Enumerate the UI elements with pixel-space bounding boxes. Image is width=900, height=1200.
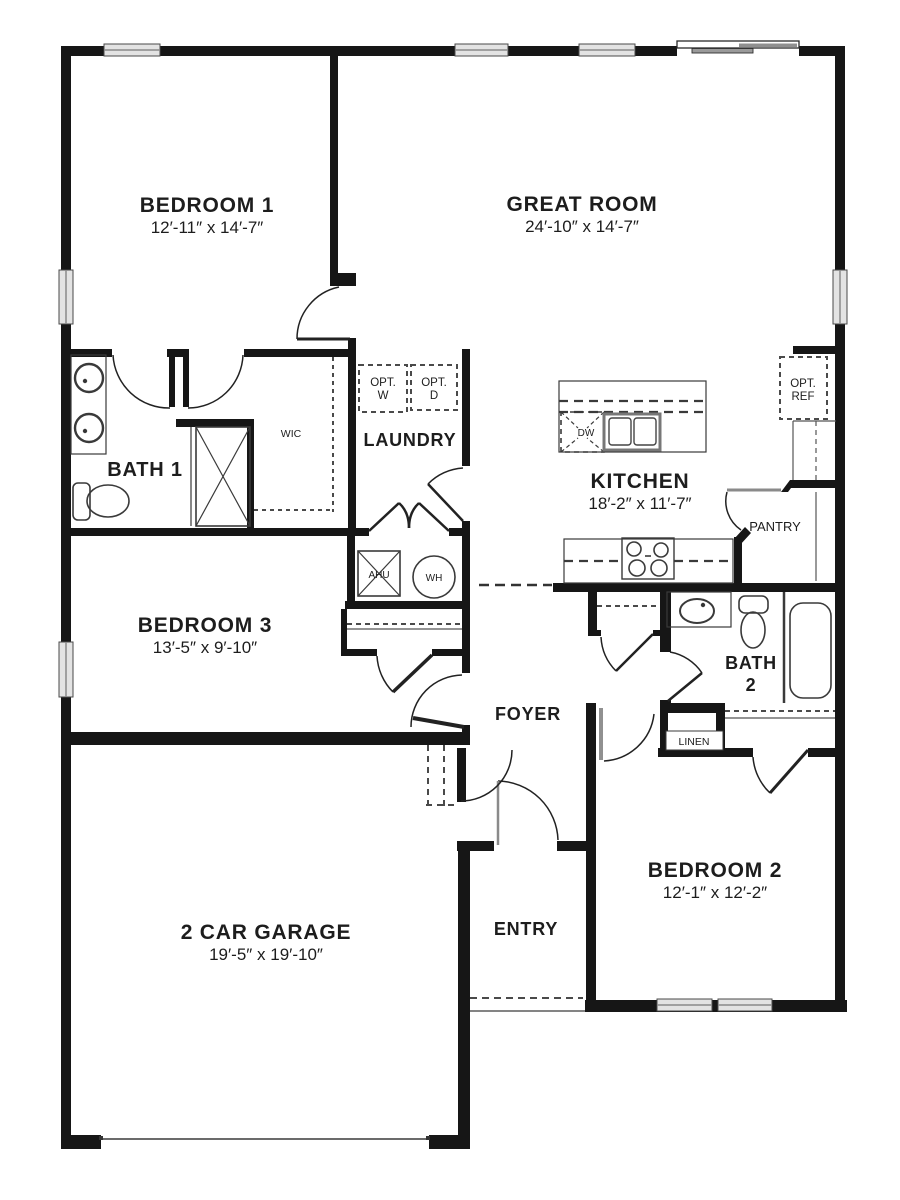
svg-text:AHU: AHU (368, 570, 389, 581)
svg-text:13′-5″ x 9′-10″: 13′-5″ x 9′-10″ (153, 638, 257, 657)
svg-text:OPT.: OPT. (370, 377, 396, 389)
svg-text:REF: REF (792, 391, 815, 403)
svg-text:WIC: WIC (281, 428, 302, 440)
svg-text:2 CAR GARAGE: 2 CAR GARAGE (181, 921, 352, 944)
svg-text:GREAT ROOM: GREAT ROOM (506, 193, 657, 216)
svg-text:12′-1″ x 12′-2″: 12′-1″ x 12′-2″ (663, 883, 767, 902)
svg-text:18′-2″ x 11′-7″: 18′-2″ x 11′-7″ (588, 494, 691, 513)
svg-text:ENTRY: ENTRY (494, 919, 558, 939)
svg-text:LINEN: LINEN (679, 736, 710, 748)
svg-text:BEDROOM 3: BEDROOM 3 (138, 614, 272, 637)
svg-text:BATH: BATH (725, 653, 777, 673)
svg-text:BEDROOM 1: BEDROOM 1 (140, 194, 274, 217)
svg-text:PANTRY: PANTRY (749, 519, 801, 534)
svg-text:2: 2 (746, 675, 757, 695)
svg-text:D: D (430, 390, 438, 402)
svg-text:W: W (378, 390, 389, 402)
svg-text:KITCHEN: KITCHEN (591, 470, 690, 493)
svg-text:WH: WH (426, 573, 443, 584)
svg-text:LAUNDRY: LAUNDRY (364, 430, 457, 450)
svg-text:12′-11″ x 14′-7″: 12′-11″ x 14′-7″ (151, 218, 264, 237)
svg-text:19′-5″ x 19′-10″: 19′-5″ x 19′-10″ (209, 945, 323, 964)
svg-text:OPT.: OPT. (790, 378, 816, 390)
svg-text:BEDROOM 2: BEDROOM 2 (648, 859, 782, 882)
svg-text:FOYER: FOYER (495, 704, 561, 724)
svg-text:DW: DW (578, 428, 595, 439)
svg-text:OPT.: OPT. (421, 377, 447, 389)
svg-text:24′-10″ x 14′-7″: 24′-10″ x 14′-7″ (525, 217, 639, 236)
svg-text:BATH 1: BATH 1 (107, 459, 183, 481)
